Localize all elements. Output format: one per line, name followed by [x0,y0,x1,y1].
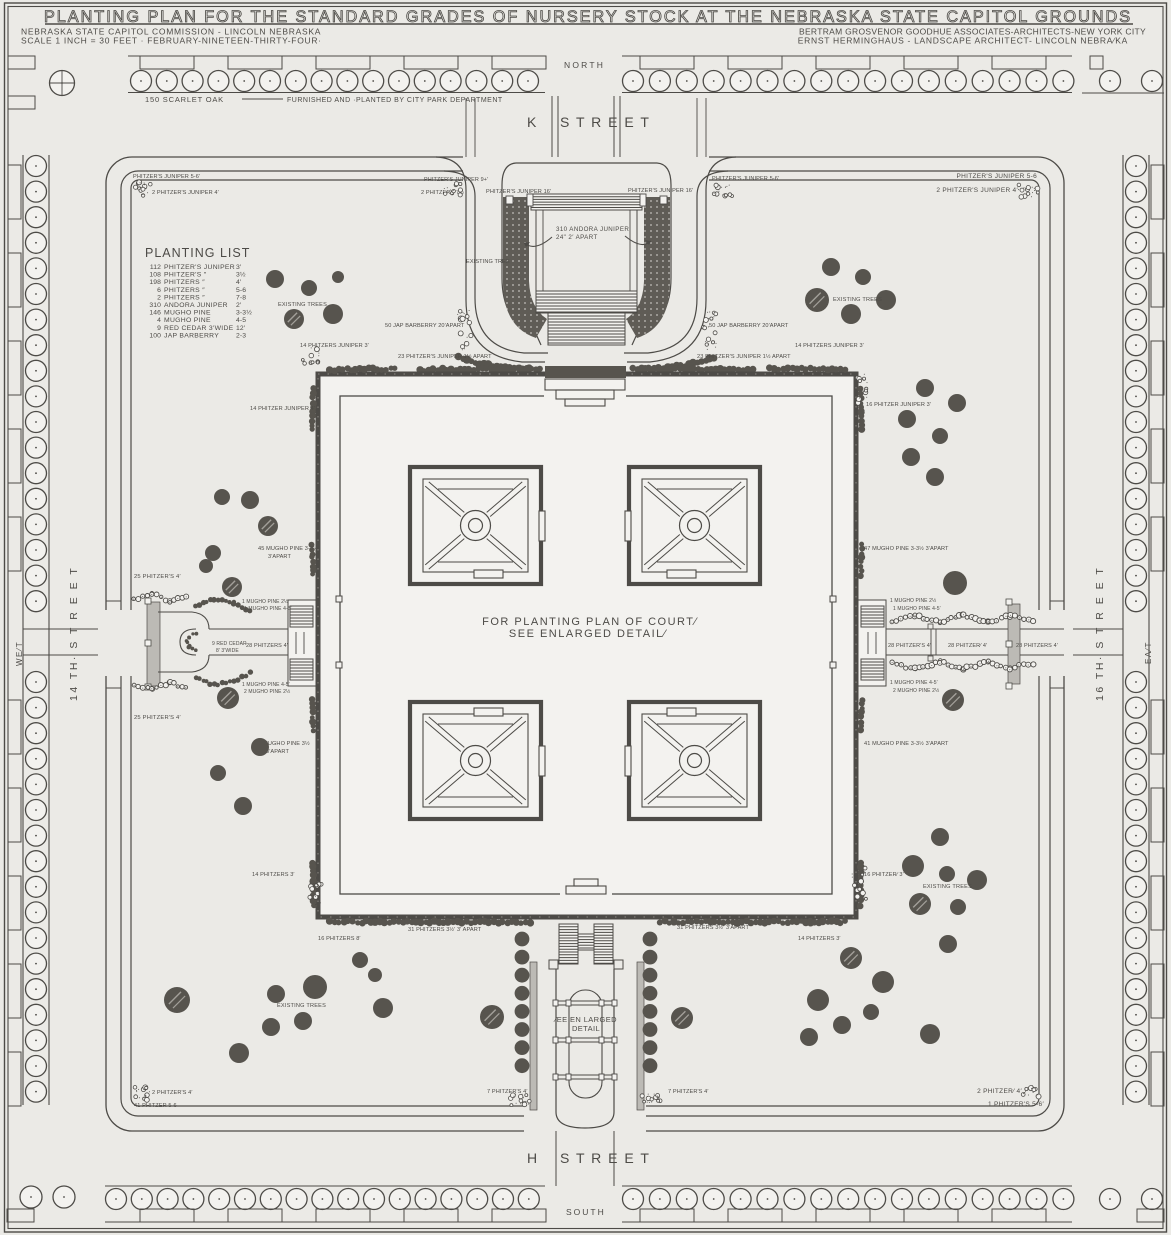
svg-text:146: 146 [149,310,161,317]
svg-text:9 RED CEDAR: 9 RED CEDAR [212,641,247,647]
svg-text:28 PHITZER⁄ 4′: 28 PHITZER⁄ 4′ [948,643,987,649]
svg-text:1 MUGHO PINE 4-5′: 1 MUGHO PINE 4-5′ [890,680,938,686]
svg-text:4′: 4′ [236,279,242,286]
svg-text:3-3½: 3-3½ [236,309,252,317]
svg-text:14 PHITZERS JUNIPER 3′: 14 PHITZERS JUNIPER 3′ [795,343,864,349]
svg-text:JAP BARBERRY: JAP BARBERRY [164,332,219,339]
svg-text:EXISTING TREE: EXISTING TREE [466,259,510,265]
svg-text:S T R E E T: S T R E E T [560,1150,650,1166]
svg-text:3′APART: 3′APART [268,554,291,560]
svg-text:16 PHITZER JUNIPER 3′: 16 PHITZER JUNIPER 3′ [866,402,931,408]
svg-text:ANDORA JUNIPER: ANDORA JUNIPER [164,302,228,309]
svg-text:PHITZER'S JUNIPER 5-6: PHITZER'S JUNIPER 5-6 [957,173,1038,180]
svg-text:2 PHITZER'S JUNIPER 4′: 2 PHITZER'S JUNIPER 4′ [936,187,1018,194]
svg-text:3′APART: 3′APART [266,749,289,755]
svg-text:SOUTH: SOUTH [566,1207,606,1217]
svg-text:41 MUGHO PINE 3-3½ 3′APART: 41 MUGHO PINE 3-3½ 3′APART [864,740,949,747]
svg-text:310: 310 [149,302,161,309]
svg-text:45 MUGHO PINE 3-3½: 45 MUGHO PINE 3-3½ [258,545,318,552]
svg-text:PHITZER'S JUNIPER 5-6′: PHITZER'S JUNIPER 5-6′ [133,174,200,180]
svg-text:7 PHITZER'S 4′: 7 PHITZER'S 4′ [668,1089,709,1095]
svg-text:2 MUGHO PINE 2½: 2 MUGHO PINE 2½ [244,688,291,695]
svg-text:9: 9 [157,325,161,332]
svg-text:PHITZERS ″: PHITZERS ″ [164,294,205,301]
svg-text:198: 198 [149,279,161,286]
svg-text:PHITZER'S JUNIPER 16′: PHITZER'S JUNIPER 16′ [628,188,693,194]
svg-text:14 TH· S T R E E T: 14 TH· S T R E E T [68,566,80,701]
svg-text:6: 6 [157,287,161,294]
svg-text:1 MUGHO PINE 4-5′: 1 MUGHO PINE 4-5′ [893,606,941,612]
svg-text:310 ANDORA JUNIPER: 310 ANDORA JUNIPER [556,226,629,233]
svg-text:PHITZER'S JUNIPER: PHITZER'S JUNIPER [164,264,235,271]
svg-text:8′ 3′WIDE: 8′ 3′WIDE [216,648,239,654]
svg-text:7-8: 7-8 [236,294,246,301]
svg-text:WE⁄T: WE⁄T [15,641,24,666]
svg-text:23 PHITZER'S JUNIPER 1½ APART: 23 PHITZER'S JUNIPER 1½ APART [398,353,492,360]
svg-text:31 PHITZERS 3½′ 3′APART: 31 PHITZERS 3½′ 3′APART [677,924,749,931]
svg-text:3½: 3½ [236,271,246,279]
svg-text:EXISTING TREES: EXISTING TREES [278,302,327,308]
svg-text:23 PHITZER'S JUNIPER 1½ APART: 23 PHITZER'S JUNIPER 1½ APART [697,353,791,360]
svg-text:4: 4 [157,317,161,324]
svg-text:EA⁄T: EA⁄T [1144,641,1153,664]
svg-text:S T R E E T: S T R E E T [560,114,650,130]
svg-text:16 TH· S T R E E T: 16 TH· S T R E E T [1094,566,1106,701]
svg-text:SCALE 1 INCH = 30 FEET · FEBR: SCALE 1 INCH = 30 FEET · FEBRUARY-NINETE… [21,36,322,46]
svg-text:MUGHO PINE: MUGHO PINE [164,317,211,324]
svg-text:5-6: 5-6 [236,287,246,294]
svg-text:2 PHITZER'S JUNIPER 4′: 2 PHITZER'S JUNIPER 4′ [152,190,219,196]
svg-text:50 JAP BARBERRY 20′APART: 50 JAP BARBERRY 20′APART [385,323,465,329]
svg-text:2 PHITZER⁄ 4′: 2 PHITZER⁄ 4′ [977,1088,1022,1095]
svg-text:1 MUGHO PINE 2½: 1 MUGHO PINE 2½ [242,598,289,605]
svg-text:2: 2 [157,294,161,301]
svg-text:16 PHITZERS 8′: 16 PHITZERS 8′ [318,936,361,942]
svg-text:47 MUGHO PINE 3-3½ 3′APART: 47 MUGHO PINE 3-3½ 3′APART [864,545,949,552]
svg-text:PHITZERS ″: PHITZERS ″ [164,279,205,286]
svg-text:2-3: 2-3 [236,332,246,339]
svg-text:FURNISHED AND ·PLANTED BY C: FURNISHED AND ·PLANTED BY CITY PARK DEPA… [287,97,503,104]
svg-text:FOR PLANTING PLAN OF COURT⁄: FOR PLANTING PLAN OF COURT⁄ [482,616,698,628]
svg-text:NORTH: NORTH [564,60,605,70]
svg-text:DETAIL: DETAIL [572,1024,600,1033]
svg-text:2 MUGHO PINE 2½: 2 MUGHO PINE 2½ [893,687,940,694]
svg-text:2 PHITZER'S 4′: 2 PHITZER'S 4′ [152,1090,193,1096]
svg-text:28 PHITZER'S 4′: 28 PHITZER'S 4′ [888,643,931,649]
svg-text:PLANTING LIST: PLANTING LIST [145,246,250,260]
svg-text:EXISTING TREES: EXISTING TREES [923,884,972,890]
svg-text:28 PHITZERS 4′: 28 PHITZERS 4′ [1016,643,1058,649]
svg-text:⁄EE EN LARGED: ⁄EE EN LARGED [553,1015,617,1024]
svg-text:24" 2′ APART: 24" 2′ APART [556,234,598,241]
svg-text:PHITZER'S ″: PHITZER'S ″ [164,272,207,279]
svg-text:16 PHITZER⁄ 3′: 16 PHITZER⁄ 3′ [864,872,904,878]
svg-text:100: 100 [149,332,161,339]
svg-text:1 MUGHO PINE 4-5′: 1 MUGHO PINE 4-5′ [244,606,292,612]
svg-text:25 PHITZER'S 4′: 25 PHITZER'S 4′ [134,715,181,721]
svg-text:3′: 3′ [236,264,242,271]
svg-text:PHITZER'S JUNIPER 5-6′: PHITZER'S JUNIPER 5-6′ [712,176,779,182]
svg-text:H: H [527,1150,537,1166]
svg-text:25 PHITZER'S 4′: 25 PHITZER'S 4′ [134,574,181,580]
svg-text:31 PHITZERS 3½′ 3′ APART: 31 PHITZERS 3½′ 3′ APART [408,926,482,933]
svg-text:EXISTING TREES: EXISTING TREES [833,297,882,303]
svg-text:14 PHITZERS 3′: 14 PHITZERS 3′ [252,872,295,878]
svg-text:41 PHITZER 5-6: 41 PHITZER 5-6 [134,1103,177,1109]
svg-text:PHITZERS ″: PHITZERS ″ [164,287,205,294]
svg-text:7 PHITZER'S 4′: 7 PHITZER'S 4′ [487,1089,528,1095]
svg-text:MUGHO PINE: MUGHO PINE [164,310,211,317]
svg-text:150 SCARLET OAK: 150 SCARLET OAK [145,95,224,104]
svg-text:14 PHITZER JUNIPER 4′: 14 PHITZER JUNIPER 4′ [250,406,315,412]
svg-text:RED CEDAR 3′WIDE: RED CEDAR 3′WIDE [164,325,234,332]
svg-text:ERNST HERMINGHAUS - LANDSCAPE: ERNST HERMINGHAUS - LANDSCAPE ARCHITECT-… [798,36,1128,46]
svg-text:4-5: 4-5 [236,317,246,324]
svg-text:14 PHITZERS JUNIPER 3′: 14 PHITZERS JUNIPER 3′ [300,343,369,349]
svg-text:108: 108 [149,272,161,279]
svg-text:112: 112 [150,264,161,271]
svg-text:2′: 2′ [236,302,242,309]
svg-text:1 MUGHO PINE 4-5′: 1 MUGHO PINE 4-5′ [242,682,290,688]
svg-text:28 PHITZERS 4′: 28 PHITZERS 4′ [246,643,288,649]
svg-text:14 PHITZERS 3′: 14 PHITZERS 3′ [798,936,841,942]
svg-text:1 PHITZER'S 5-6′: 1 PHITZER'S 5-6′ [988,1101,1045,1108]
svg-text:EXISTING TREES: EXISTING TREES [277,1003,326,1009]
svg-text:12′: 12′ [236,325,246,332]
svg-text:50 JAP BARBERRY 20′APART: 50 JAP BARBERRY 20′APART [709,323,789,329]
svg-text:PHITZER'S JUNIPER 16′: PHITZER'S JUNIPER 16′ [486,189,551,195]
svg-text:SEE ENLARGED DETAIL⁄: SEE ENLARGED DETAIL⁄ [509,628,668,640]
svg-text:K: K [527,114,537,130]
svg-text:1 MUGHO PINE 2½: 1 MUGHO PINE 2½ [890,597,937,604]
